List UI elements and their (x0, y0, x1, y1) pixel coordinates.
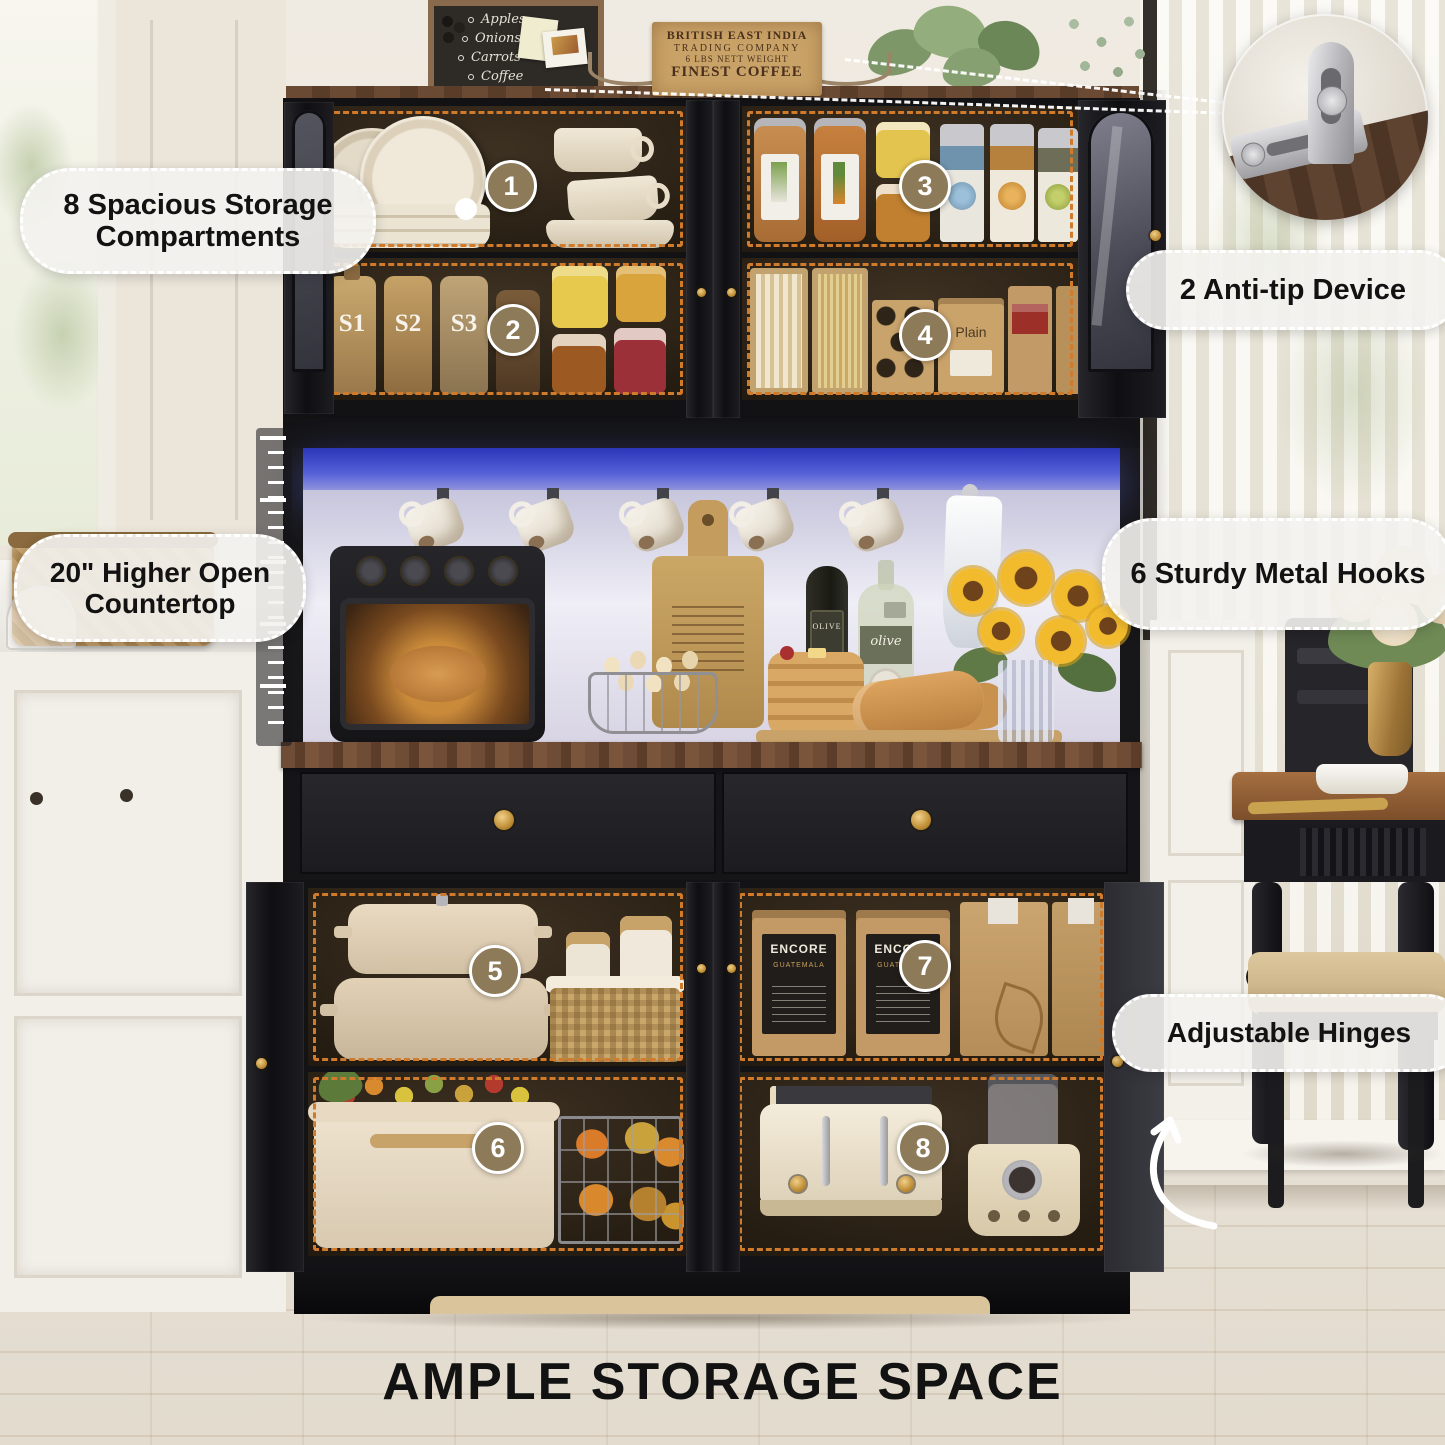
woven-basket (550, 988, 680, 1062)
food-processor (962, 1074, 1088, 1242)
marker-number: 3 (917, 171, 932, 202)
processor-dial (1002, 1160, 1042, 1200)
callout-compartments: 8 Spacious Storage Compartments (20, 168, 376, 274)
air-fryer-knob (402, 558, 428, 584)
label-art (771, 162, 787, 202)
storage-bin (314, 1106, 554, 1248)
lower-left-door (246, 882, 304, 1272)
bag-origin-text: GUATEMALA (762, 962, 836, 969)
callout-text: 2 Anti-tip Device (1180, 274, 1406, 306)
sunflower (1000, 552, 1052, 604)
door-knob (697, 288, 706, 297)
mid-top-rail (283, 418, 1140, 448)
pancake-stack (768, 652, 864, 736)
egg-basket (588, 648, 720, 738)
anti-tip-inset (1222, 14, 1428, 220)
toaster-dial (898, 1176, 914, 1192)
door-glass (1088, 110, 1154, 372)
sunflower (1038, 618, 1084, 664)
coffee-box-line: FINEST COFFEE (652, 64, 822, 81)
bottle-band: olive (860, 626, 912, 664)
carrot-jar (814, 118, 866, 242)
cabinet-knob (120, 789, 133, 802)
bowl (546, 220, 674, 248)
photo-food (551, 35, 579, 56)
marker-number: 8 (915, 1133, 930, 1164)
wainscot-groove (1168, 650, 1244, 856)
encore-coffee-bag: ENCORE GUATEMALA (752, 910, 846, 1056)
jam-jar (614, 328, 666, 394)
bag-tape (1068, 898, 1094, 924)
marker-8: 8 (897, 1122, 949, 1174)
apron-fluting (1300, 828, 1426, 876)
magnet (443, 32, 454, 43)
kraft-bag (1052, 902, 1104, 1056)
pot-handle (334, 926, 352, 938)
tin-sticker (998, 182, 1026, 210)
bottle-letter: S3 (440, 310, 488, 338)
toaster-base (760, 1200, 942, 1216)
coffee-box-line: TRADING COMPANY (652, 43, 822, 54)
toaster-lever (822, 1116, 830, 1186)
cabinet-knob (30, 792, 43, 805)
tin-band (1038, 148, 1078, 172)
spice-jar (754, 118, 806, 242)
callout-anti-tip: 2 Anti-tip Device (1126, 250, 1445, 330)
bin-rim (308, 1102, 560, 1122)
upper-center-door-right (713, 100, 740, 418)
air-fryer (330, 546, 545, 742)
teacup (554, 128, 642, 172)
marker-7: 7 (899, 940, 951, 992)
chalkboard: Apples Onions Carrots Coffee (428, 0, 604, 96)
marker-number: 1 (503, 171, 518, 202)
coffee-box-line: BRITISH EAST INDIA (652, 28, 822, 43)
jar-label (821, 154, 859, 220)
bottle-letter: S1 (328, 310, 376, 338)
marker-3: 3 (899, 160, 951, 212)
marker-number: 7 (917, 951, 932, 982)
cookie-mix-tin (1038, 128, 1078, 242)
hinge-arrow (1118, 1066, 1258, 1241)
callout-text: Adjustable Hinges (1167, 1017, 1411, 1048)
top-plant (862, 0, 1067, 100)
callout-text: 8 Spacious Storage Compartments (37, 189, 359, 254)
label-lines (772, 986, 826, 1024)
air-fryer-knob (446, 558, 472, 584)
marker-number: 6 (490, 1133, 505, 1164)
product-infographic: Apples Onions Carrots Coffee (0, 0, 1445, 1445)
toaster-dial (790, 1176, 806, 1192)
honey-jar (616, 266, 666, 322)
toaster-lever (880, 1116, 888, 1186)
wire-pumpkin-basket (558, 1116, 682, 1244)
lower-center-door-right (713, 882, 740, 1272)
cookie-mix-tin (990, 124, 1034, 242)
door-knob (1150, 230, 1161, 241)
marker-4: 4 (899, 309, 951, 361)
headline: AMPLE STORAGE SPACE (0, 1352, 1445, 1412)
coffee-pouch (1056, 286, 1078, 394)
door-knob (727, 964, 736, 973)
encore-label: ENCORE GUATEMALA (762, 934, 836, 1034)
callout-text: 6 Sturdy Metal Hooks (1131, 558, 1426, 590)
processor-jar (988, 1074, 1058, 1148)
coffee-box: BRITISH EAST INDIA TRADING COMPANY 6 LBS… (652, 22, 822, 96)
marker-dot (455, 198, 477, 220)
door-knob (727, 288, 736, 297)
lower-center-door-left (686, 882, 713, 1272)
pot-knob (436, 894, 448, 906)
cabinet-panel (14, 1016, 242, 1278)
drawer-knob (494, 810, 514, 830)
upper-center-door-left (686, 100, 713, 418)
bracket-screw (1317, 86, 1347, 116)
dining-floor-shadow (1240, 1140, 1445, 1168)
plinth-arch (430, 1296, 990, 1314)
marker-1: 1 (485, 160, 537, 212)
jar-label (761, 154, 799, 220)
bag-tape (988, 898, 1018, 924)
syrup-bottle: S1 (328, 276, 376, 394)
roast-chicken (390, 646, 486, 702)
sunflower (980, 610, 1022, 652)
flower-vase (1368, 662, 1412, 756)
coffee-pouch (1008, 286, 1052, 394)
dutch-oven (334, 978, 548, 1060)
chalk-item: Coffee (468, 67, 598, 86)
headline-text: AMPLE STORAGE SPACE (382, 1353, 1062, 1411)
door-knob (256, 1058, 267, 1069)
syrup-bottle: S2 (384, 276, 432, 394)
spaghetti-container (812, 268, 868, 394)
leaf-print (986, 982, 1052, 1055)
led-strip (303, 448, 1120, 490)
marker-number: 4 (917, 320, 932, 351)
countertop-wood (281, 742, 1142, 768)
processor-button (1018, 1210, 1030, 1222)
processor-button (988, 1210, 1000, 1222)
air-fryer-knob (490, 558, 516, 584)
sunflower (950, 568, 996, 614)
tin-sticker (1045, 184, 1071, 210)
bag-label-white (950, 350, 992, 376)
marker-5: 5 (469, 945, 521, 997)
callout-countertop: 20" Higher Open Countertop (14, 534, 306, 642)
magnet (442, 16, 453, 27)
pasta-container (750, 268, 808, 394)
pot-handle (534, 926, 552, 938)
caramel-jar (552, 334, 606, 394)
bracket-screw (1239, 140, 1268, 169)
lemon-curd-jar (552, 266, 608, 328)
board-hole (702, 514, 714, 526)
olive-label-text: OLIVE (812, 622, 842, 631)
marker-number: 2 (505, 315, 520, 346)
bottle-letter: S2 (384, 310, 432, 338)
tin-sticker (948, 182, 976, 210)
butter (808, 648, 826, 658)
olive-label-text: olive (860, 634, 912, 649)
air-fryer-knob (358, 558, 384, 584)
pouch-label (1012, 304, 1048, 334)
drawer-knob (911, 810, 931, 830)
tin-band (990, 146, 1034, 170)
kraft-bag (960, 902, 1048, 1056)
cabinet-panel (14, 690, 242, 996)
callout-hinges: Adjustable Hinges (1112, 994, 1445, 1072)
marker-6: 6 (472, 1122, 524, 1174)
tin-band (940, 146, 984, 170)
coffee-box-line: 6 LBS NETT WEIGHT (652, 54, 822, 64)
bag-brand-text: ENCORE (762, 942, 836, 956)
berry (780, 646, 794, 660)
callout-hooks: 6 Sturdy Metal Hooks (1102, 518, 1445, 630)
door-knob (697, 964, 706, 973)
marker-2: 2 (487, 304, 539, 356)
table-bowl (1316, 764, 1408, 794)
callout-text: 20" Higher Open Countertop (31, 557, 289, 620)
fluted-vase (998, 660, 1054, 746)
pot-handle (320, 1004, 338, 1016)
wire-basket (588, 672, 718, 734)
magnet (454, 22, 465, 33)
air-fryer-window (340, 598, 535, 730)
syrup-bottle: S3 (440, 276, 488, 394)
teacup (567, 175, 660, 225)
processor-button (1048, 1210, 1060, 1222)
bracket-vertical-arm (1308, 42, 1354, 164)
marker-number: 5 (487, 956, 502, 987)
label-art (833, 162, 845, 204)
